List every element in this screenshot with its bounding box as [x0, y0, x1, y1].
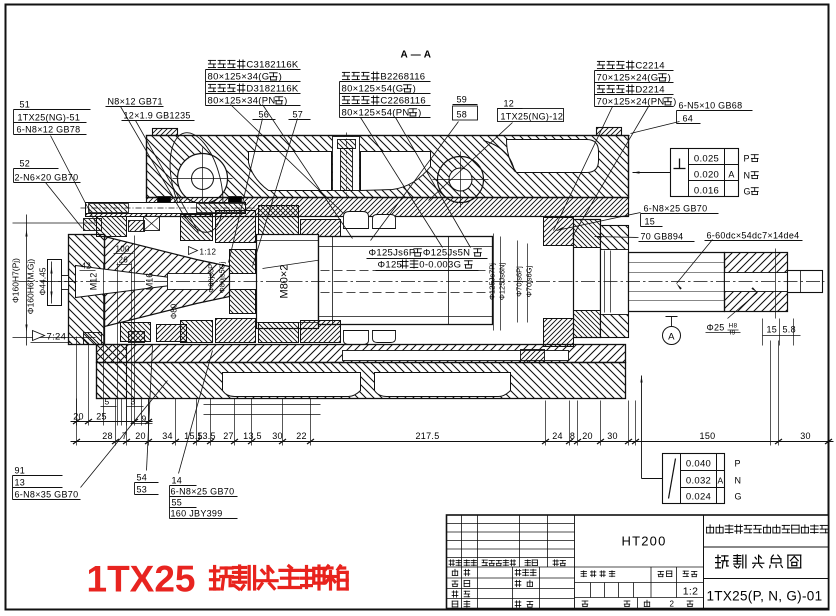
svg-text:42: 42	[82, 262, 92, 271]
svg-text:Φ80js6Pj: Φ80js6Pj	[207, 262, 216, 293]
svg-text:6-60dc×54dc7×14de4: 6-60dc×54dc7×14de4	[707, 231, 800, 241]
svg-text:70×125×24(G: 70×125×24(G	[597, 73, 659, 84]
svg-text:N: N	[735, 476, 742, 486]
svg-text:M80×2: M80×2	[279, 265, 291, 299]
svg-text:24: 24	[552, 431, 563, 441]
svg-text:25: 25	[96, 412, 107, 422]
svg-text:Φ125Js7Pj: Φ125Js7Pj	[488, 263, 497, 300]
svg-text:Φ80js5Gj: Φ80js5Gj	[218, 261, 227, 293]
svg-text:59: 59	[457, 95, 468, 105]
svg-text:9: 9	[142, 414, 147, 424]
svg-text:30: 30	[272, 431, 283, 441]
svg-text:C3182116K: C3182116K	[246, 60, 299, 71]
svg-text:20: 20	[582, 431, 593, 441]
svg-text:30: 30	[607, 431, 618, 441]
svg-text:): )	[413, 84, 416, 95]
svg-text:53: 53	[137, 485, 148, 495]
svg-text:28: 28	[102, 431, 113, 441]
svg-text:0.032: 0.032	[686, 476, 711, 487]
svg-text:1TX25: 1TX25	[87, 559, 196, 600]
svg-text:D3182116K: D3182116K	[246, 84, 299, 95]
svg-text:M12: M12	[89, 273, 99, 291]
svg-text:G: G	[744, 187, 751, 197]
svg-text:80×125×54(PN: 80×125×54(PN	[342, 108, 410, 119]
svg-text:Φ160H7(Pj): Φ160H7(Pj)	[11, 258, 21, 303]
svg-text:6-N8×35 GB70: 6-N8×35 GB70	[15, 490, 79, 500]
svg-text:A — A: A — A	[401, 50, 432, 61]
svg-text:1TX25(NG)-12: 1TX25(NG)-12	[501, 112, 564, 122]
svg-text:15: 15	[767, 325, 778, 335]
svg-text:B2268116: B2268116	[380, 72, 425, 83]
svg-text:Φ70js6Pj: Φ70js6Pj	[515, 266, 524, 297]
svg-text:0-0.003G: 0-0.003G	[419, 260, 461, 271]
svg-text:Φ44.45: Φ44.45	[38, 267, 48, 295]
svg-text:80×125×34(PN: 80×125×34(PN	[208, 96, 276, 107]
svg-text:): )	[418, 108, 421, 119]
svg-text:26: 26	[119, 256, 129, 265]
svg-text:217.5: 217.5	[415, 431, 439, 441]
svg-text:0.016: 0.016	[694, 186, 719, 197]
svg-text:1:2: 1:2	[683, 586, 699, 598]
svg-text:A: A	[668, 332, 675, 343]
svg-text:70×125×24(PN: 70×125×24(PN	[597, 97, 665, 108]
svg-text:7:24: 7:24	[47, 332, 67, 343]
svg-text:Φ125Js5N: Φ125Js5N	[423, 248, 470, 259]
svg-text:22: 22	[296, 431, 307, 441]
svg-text:Φ25: Φ25	[707, 323, 725, 333]
svg-text:5.8: 5.8	[783, 325, 796, 335]
svg-text:D2214: D2214	[635, 85, 665, 96]
svg-text:1TX25(NG)-51: 1TX25(NG)-51	[18, 113, 81, 123]
svg-text:34: 34	[162, 431, 173, 441]
svg-text:Φ125Js6P: Φ125Js6P	[369, 248, 416, 259]
svg-text:2: 2	[670, 600, 675, 609]
svg-text:Φ80: Φ80	[170, 303, 179, 319]
svg-text:13: 13	[15, 478, 26, 488]
svg-text:1:12: 1:12	[200, 248, 217, 257]
svg-text:80×125×34(G: 80×125×34(G	[208, 72, 270, 83]
svg-text:30: 30	[800, 431, 811, 441]
svg-text:f9: f9	[730, 330, 736, 337]
svg-text:7: 7	[122, 431, 127, 441]
svg-text:56: 56	[259, 110, 270, 120]
svg-text:2-N6×20 GB70: 2-N6×20 GB70	[15, 173, 79, 183]
svg-text:M16: M16	[145, 273, 155, 291]
svg-text:C2268116: C2268116	[380, 96, 426, 107]
svg-text:12: 12	[504, 99, 515, 109]
svg-text:3: 3	[131, 397, 136, 407]
svg-text:H8: H8	[729, 323, 738, 330]
svg-text:Φ125Js6Nj: Φ125Js6Nj	[498, 263, 507, 301]
svg-text:6-N8×25 GB70: 6-N8×25 GB70	[644, 204, 708, 214]
svg-text:27: 27	[223, 431, 234, 441]
svg-text:N8×12 GB71: N8×12 GB71	[108, 97, 163, 107]
svg-text:Φ160H6(M.Gj): Φ160H6(M.Gj)	[26, 259, 36, 315]
svg-text:6-N8×12 GB78: 6-N8×12 GB78	[17, 125, 81, 135]
svg-text:15: 15	[645, 217, 656, 227]
svg-text:0.040: 0.040	[686, 459, 711, 470]
svg-text:Φ70js6Gj: Φ70js6Gj	[525, 265, 534, 297]
svg-text:80×125×54(G: 80×125×54(G	[342, 84, 404, 95]
svg-text:A: A	[718, 476, 724, 486]
svg-text:N: N	[744, 171, 751, 181]
svg-text:6-N5×10 GB68: 6-N5×10 GB68	[679, 101, 743, 111]
svg-text:0.025: 0.025	[694, 154, 719, 165]
svg-text:): )	[673, 97, 676, 108]
svg-text:1TX25(P, N, G)-01: 1TX25(P, N, G)-01	[707, 589, 823, 604]
svg-text:5: 5	[105, 397, 110, 407]
svg-text:20: 20	[135, 431, 146, 441]
svg-text:160 JBY399: 160 JBY399	[171, 509, 223, 519]
svg-text:HT200: HT200	[622, 534, 667, 549]
svg-text:14: 14	[172, 476, 183, 486]
svg-text:64: 64	[683, 114, 694, 124]
svg-text:G: G	[735, 492, 742, 502]
svg-text:): )	[668, 73, 671, 84]
svg-text:55: 55	[172, 498, 183, 508]
svg-text:12×1.9 GB1235: 12×1.9 GB1235	[124, 111, 191, 121]
svg-text:52: 52	[20, 159, 31, 169]
svg-text:100: 100	[116, 245, 130, 254]
svg-text:C2214: C2214	[635, 61, 665, 72]
svg-text:Φ125: Φ125	[378, 260, 403, 271]
svg-text:0.020: 0.020	[694, 170, 719, 181]
svg-text:91: 91	[15, 466, 26, 476]
svg-text:): )	[279, 72, 282, 83]
svg-text:P: P	[735, 459, 741, 469]
svg-text:70 GB894: 70 GB894	[641, 232, 684, 242]
svg-text:A: A	[728, 170, 734, 180]
svg-text:P: P	[744, 154, 750, 164]
svg-text:54: 54	[137, 473, 148, 483]
svg-text:58: 58	[457, 110, 468, 120]
svg-text:6-N8×25 GB70: 6-N8×25 GB70	[171, 487, 235, 497]
svg-text:150: 150	[700, 431, 716, 441]
svg-text:0.024: 0.024	[686, 492, 711, 503]
svg-text:13.5: 13.5	[243, 431, 262, 441]
svg-text:): )	[284, 96, 287, 107]
svg-text:57: 57	[293, 110, 304, 120]
svg-text:51: 51	[20, 100, 31, 110]
